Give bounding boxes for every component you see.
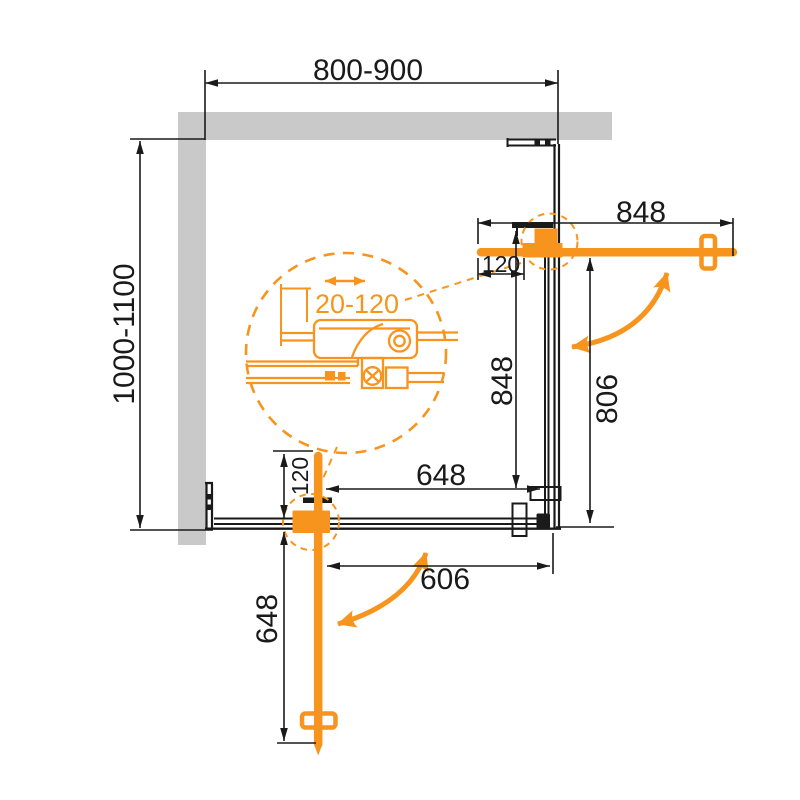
bottom-glass-panel: [214, 519, 546, 525]
dim-bottom-panel: 648: [326, 459, 540, 492]
dim-adjustment-label: 20-120: [315, 289, 399, 319]
door-right: [481, 214, 733, 348]
dim-bottom-panel-label: 648: [416, 459, 466, 492]
door-bottom-roller-block: [293, 511, 331, 534]
dim-bottom-offset-label: 120: [287, 457, 313, 495]
dim-right-opening: 806: [556, 258, 624, 527]
dim-bottom-door-label: 648: [251, 594, 284, 644]
dim-bottom-offset: 120: [273, 451, 313, 518]
wall-top: [178, 112, 612, 140]
adjustment-mechanism: [246, 320, 458, 388]
door-bottom-bar-tip: [314, 744, 323, 756]
dim-width-label: 800-900: [313, 54, 423, 87]
dim-right-panel-label: 848: [486, 356, 519, 406]
wall-left: [178, 112, 206, 545]
swing-arrow-icon-right: [572, 273, 667, 347]
detail-view: 20-120: [246, 253, 521, 492]
frame-bottom-profile: [205, 483, 561, 529]
technical-drawing-page: 20-120 800-900 1000-1100 848 120 848 806…: [0, 0, 800, 800]
door-right-roller-block: [535, 229, 558, 246]
dim-bottom-opening-label: 606: [420, 563, 470, 596]
dim-right-offset: 120: [478, 251, 524, 280]
dim-depth-label: 1000-1100: [108, 263, 141, 404]
swing-arrow-icon-bottom: [338, 553, 426, 624]
dim-bottom-opening: 606: [327, 533, 553, 596]
dim-right-offset-label: 120: [482, 251, 520, 277]
dim-right-opening-label: 806: [591, 374, 624, 424]
dim-right-door-label: 848: [616, 196, 666, 229]
dim-adjustment: 20-120: [281, 281, 399, 346]
right-glass-panel: [545, 234, 549, 517]
enclosure-plan-drawing: 20-120 800-900 1000-1100 848 120 848 806…: [0, 0, 800, 800]
